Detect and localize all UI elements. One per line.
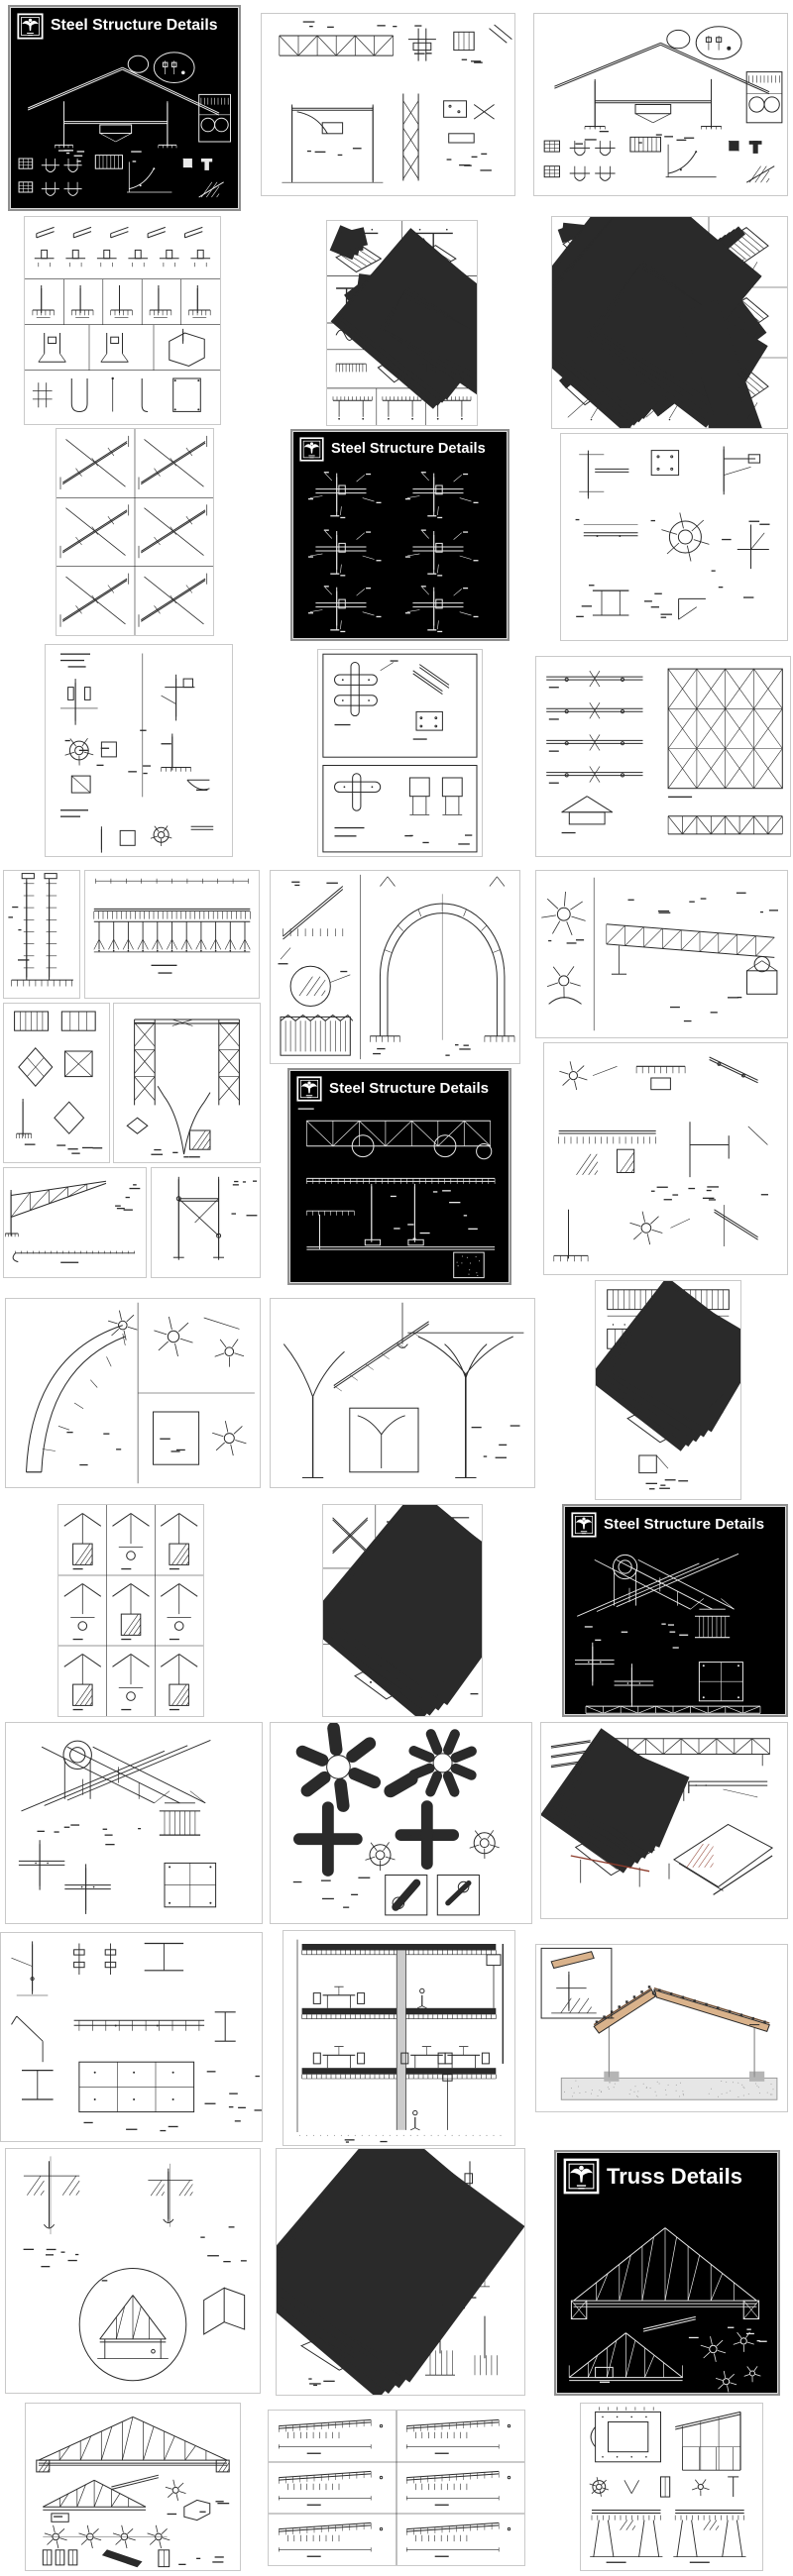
drawing-longDeck (85, 871, 259, 998)
thumbnail-truss-and-stair-details[interactable] (540, 1722, 788, 1919)
thumbnail-crossing-joist-details[interactable] (56, 428, 214, 636)
thumbnail-frame-details-sheet[interactable] (580, 2403, 763, 2571)
drawing-trussPortal (262, 14, 514, 195)
thumbnail-floor-framing-isometric[interactable] (5, 1722, 263, 1924)
drawing-spaceTruss (536, 657, 790, 856)
drawing-trussBlack (556, 2196, 778, 2396)
drawing-compositeSlab (596, 1281, 740, 1499)
drawing-planBolts (318, 650, 482, 856)
drawing-connLabeled (561, 434, 787, 640)
thumbnail-deck-panel-details[interactable] (326, 220, 478, 426)
thumbnail-foundation-details[interactable] (5, 2148, 261, 2394)
drawing-momentConn (1, 1933, 262, 2141)
thumbnail-deck-panel-grid[interactable] (551, 216, 788, 429)
drawing-spiderNodes (271, 1723, 531, 1923)
cover-header: Steel Structure Details (289, 1070, 510, 1103)
cover-header: Steel Structure Details (292, 431, 508, 463)
thumbnail-space-frame-details[interactable] (535, 656, 791, 857)
thumbnail-curved-lattice-arch-details[interactable] (5, 1298, 261, 1488)
drawing-roofFrame (534, 14, 787, 195)
cover-title: Truss Details (607, 2165, 742, 2188)
drawing-bridgeStairs (541, 1723, 787, 1918)
drawing-connIso (292, 463, 508, 638)
thumbnail-moment-connection-details[interactable] (0, 1932, 263, 2142)
thumbnail-cover-truss-details[interactable]: Truss Details (554, 2150, 780, 2396)
thumbnail-splice-plan-details[interactable] (317, 649, 483, 857)
drawing-wallSection (4, 871, 79, 998)
drawing-treeColumns (271, 1299, 534, 1487)
cad-collage-preview: Steel Structure DetailsSteel Structure D… (0, 0, 793, 2576)
thumbnail-bracing-and-base-details[interactable] (322, 1504, 483, 1717)
thumbnail-cover-steel-structure-details-2[interactable]: Steel Structure Details (290, 429, 510, 641)
cover-header: Truss Details (556, 2152, 778, 2196)
thumbnail-strut-and-anchor-details[interactable] (276, 2148, 525, 2396)
drawing-connLabeled2 (46, 645, 232, 856)
drawing-frameSheet (581, 2404, 762, 2570)
vitruvian-bird-logo-icon (17, 13, 44, 40)
thumbnail-column-base-details[interactable] (24, 216, 221, 425)
drawing-arch (271, 871, 519, 1063)
drawing-curvedArch (6, 1299, 260, 1487)
thumbnail-wall-section-detail[interactable] (3, 870, 80, 999)
cover-header: Steel Structure Details (564, 1506, 786, 1539)
thumbnail-walkway-truss-details[interactable] (535, 870, 788, 1038)
thumbnail-cantilever-truss-details[interactable] (3, 1167, 147, 1278)
cover-title: Steel Structure Details (51, 18, 218, 35)
drawing-purlinGrid (58, 1505, 203, 1716)
drawing-isoFloor (6, 1723, 262, 1923)
thumbnail-eaves-detail-rows[interactable] (268, 2410, 525, 2566)
cover-header: Steel Structure Details (10, 7, 239, 41)
thumbnail-bracing-plan-details[interactable] (3, 1003, 110, 1163)
drawing-trussSheet (26, 2404, 240, 2570)
vitruvian-bird-logo-icon (571, 1512, 597, 1538)
drawing-eaveDetails (544, 1043, 787, 1274)
vitruvian-bird-logo-icon (299, 437, 324, 462)
thumbnail-truss-and-portal-details[interactable] (261, 13, 515, 196)
drawing-tanPortal (536, 1945, 787, 2111)
thumbnail-building-cross-section[interactable] (283, 1930, 515, 2146)
vitruvian-bird-logo-icon (563, 2158, 600, 2195)
drawing-walkway (536, 871, 787, 1037)
thumbnail-purlin-connection-grid[interactable] (57, 1504, 204, 1717)
thumbnail-canopy-tree-column-details[interactable] (270, 1298, 535, 1488)
drawing-cantilever (4, 1168, 146, 1277)
thumbnail-node-connector-details[interactable] (270, 1722, 532, 1924)
drawing-deck3x3 (552, 217, 787, 428)
thumbnail-arch-structure-details[interactable] (270, 870, 520, 1064)
vitruvian-bird-logo-icon (296, 1076, 322, 1102)
thumbnail-cover-steel-structure-details-4[interactable]: Steel Structure Details (562, 1504, 788, 1717)
drawing-eavesRows (269, 2411, 524, 2565)
thumbnail-roof-frame-details[interactable] (533, 13, 788, 196)
drawing-girderSection (289, 1103, 510, 1283)
cover-title: Steel Structure Details (329, 1081, 489, 1097)
thumbnail-composite-slab-details[interactable] (595, 1280, 741, 1500)
cover-title: Steel Structure Details (604, 1517, 764, 1533)
drawing-crossJoists (57, 429, 213, 635)
drawing-deckGrid (327, 221, 477, 425)
thumbnail-framing-connection-details[interactable] (45, 644, 233, 857)
drawing-baseGrid (25, 217, 220, 424)
drawing-isoFloor (564, 1539, 786, 1715)
drawing-roofFrame (10, 41, 239, 209)
thumbnail-truss-details-sheet[interactable] (25, 2403, 241, 2571)
drawing-towerPlan (4, 1004, 109, 1162)
thumbnail-portal-frame-section[interactable] (535, 1944, 788, 2112)
drawing-strutDetails (277, 2149, 524, 2395)
thumbnail-bracing-elevation-detail[interactable] (151, 1167, 261, 1278)
cover-title: Steel Structure Details (331, 442, 486, 457)
thumbnail-lattice-column-details[interactable] (113, 1003, 261, 1163)
drawing-foundation (6, 2149, 260, 2393)
drawing-braceElev (152, 1168, 260, 1277)
thumbnail-beam-column-connection-details[interactable] (560, 433, 788, 641)
thumbnail-floor-deck-elevation[interactable] (84, 870, 260, 999)
thumbnail-eave-section-details[interactable] (543, 1042, 788, 1275)
thumbnail-cover-steel-structure-details-3[interactable]: Steel Structure Details (287, 1068, 511, 1285)
drawing-braceBase (323, 1505, 482, 1716)
drawing-latticeTower (114, 1004, 260, 1162)
thumbnail-cover-steel-structure-details-1[interactable]: Steel Structure Details (8, 5, 241, 211)
drawing-buildingSection (283, 1931, 514, 2145)
